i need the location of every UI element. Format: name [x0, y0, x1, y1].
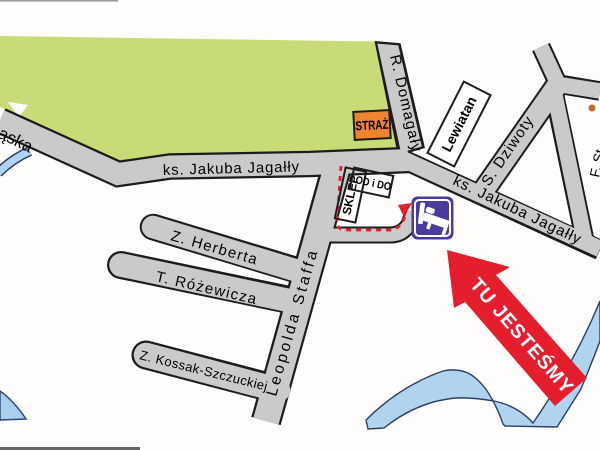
svg-text:ks. Jakuba Jagałły: ks. Jakuba Jagałły — [163, 158, 300, 179]
svg-text:STRAŻ: STRAŻ — [355, 117, 389, 134]
